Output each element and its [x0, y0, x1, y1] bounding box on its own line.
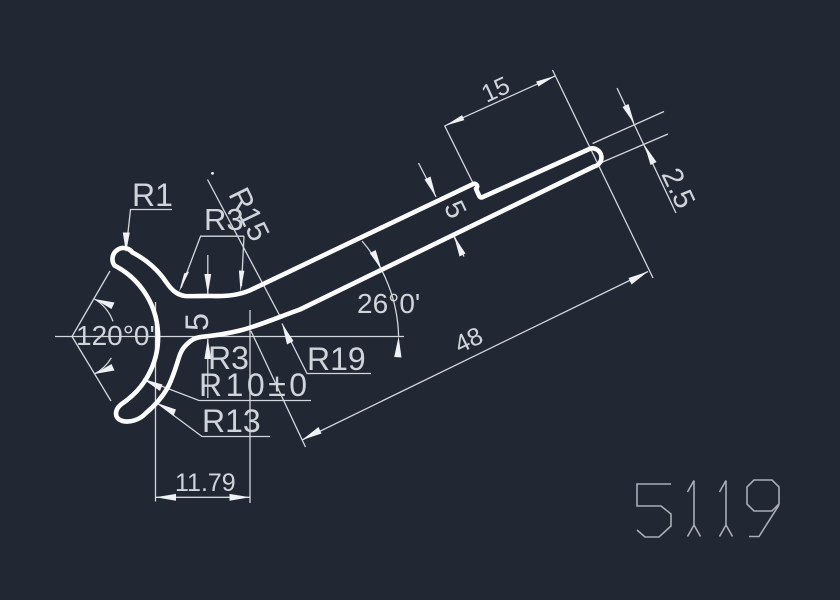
svg-text:11.79: 11.79	[175, 469, 236, 497]
svg-text:R10±0: R10±0	[199, 367, 311, 403]
svg-text:120°0': 120°0'	[76, 320, 155, 351]
svg-text:5: 5	[179, 313, 215, 331]
svg-text:26°0': 26°0'	[357, 288, 420, 319]
svg-text:R19: R19	[307, 341, 366, 377]
svg-text:R1: R1	[132, 177, 173, 213]
svg-text:R13: R13	[202, 403, 261, 439]
